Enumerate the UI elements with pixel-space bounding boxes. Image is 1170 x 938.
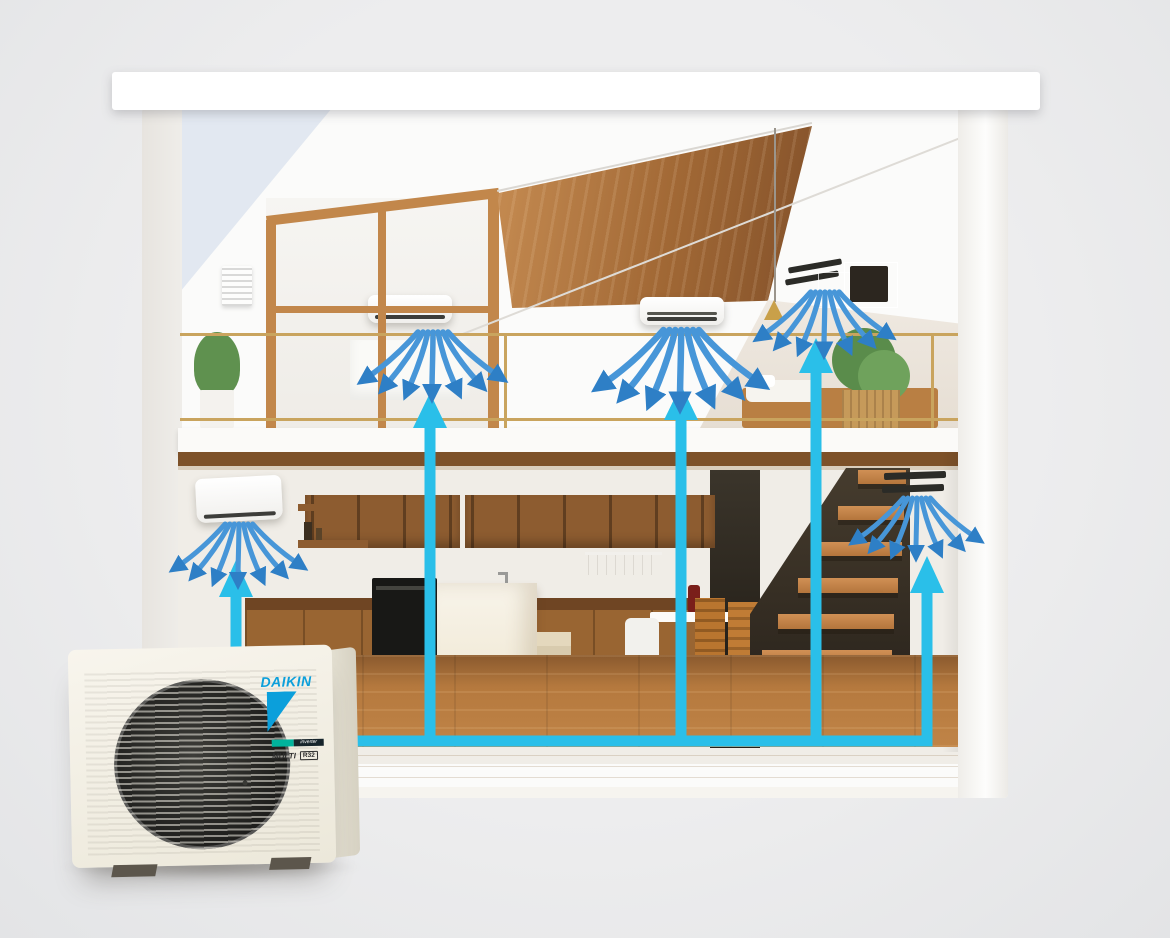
ac-vent-slot	[647, 312, 718, 315]
stair-tread	[838, 506, 904, 520]
ceiling-beam	[178, 452, 960, 466]
series-label: inverter	[294, 739, 324, 747]
series-bar-accent	[272, 739, 294, 746]
indoor-unit-ground-left	[195, 475, 283, 523]
model-label-row: MULTI R32	[272, 749, 332, 762]
oven-handle	[376, 586, 433, 590]
stair-tread	[778, 614, 894, 629]
kitchen-upper-cabinet	[465, 495, 715, 548]
unit-foot	[269, 857, 311, 870]
model-label: MULTI	[272, 751, 296, 760]
wall-shelf-outline	[844, 262, 898, 308]
unit-foot	[111, 864, 157, 877]
stair-tread	[818, 542, 902, 556]
ac-vent-slot	[647, 317, 718, 321]
wall-shelf	[298, 540, 368, 548]
ceiling-trim	[178, 466, 960, 470]
sliding-door-frame-left	[266, 220, 276, 428]
refrigerant-badge: R32	[300, 750, 318, 759]
wall-shelf	[298, 504, 356, 511]
sliding-door-rail	[270, 306, 496, 313]
daikin-logo: DAIKIN	[260, 673, 322, 690]
sink-faucet	[498, 572, 508, 575]
roof-fascia	[112, 72, 1040, 110]
balcony-plant	[194, 332, 240, 396]
balcony-railing	[180, 333, 960, 336]
shelf-bottle	[304, 522, 312, 540]
plant-basket	[842, 390, 900, 430]
wood-ceiling-grain	[497, 126, 812, 308]
hanging-utensils	[588, 555, 658, 575]
stair-tread	[798, 578, 898, 593]
ac-vent-slot	[204, 511, 276, 519]
floor-slab	[178, 428, 960, 452]
balcony-railing	[180, 418, 960, 421]
exterior-vent	[222, 266, 252, 306]
right-exterior-wall	[958, 108, 1008, 798]
wall-frame-outline	[818, 272, 850, 308]
sliding-door-mullion	[378, 208, 386, 428]
pillow	[749, 375, 775, 387]
outdoor-unit-body: DAIKIN inverter MULTI R32	[68, 645, 337, 868]
railing-post	[931, 333, 934, 428]
indoor-unit-upper-middle	[640, 297, 724, 325]
screw	[243, 780, 248, 785]
series-label-bar: inverter	[272, 739, 324, 748]
balcony-plant-pot	[200, 390, 234, 428]
upper-left-cabinet	[350, 340, 470, 400]
pendant-light-cord	[774, 128, 776, 302]
shelf-bottle	[316, 528, 322, 540]
railing-post	[504, 333, 507, 428]
scene: DAIKIN inverter MULTI R32	[0, 0, 1170, 938]
outdoor-unit: DAIKIN inverter MULTI R32	[68, 640, 363, 872]
